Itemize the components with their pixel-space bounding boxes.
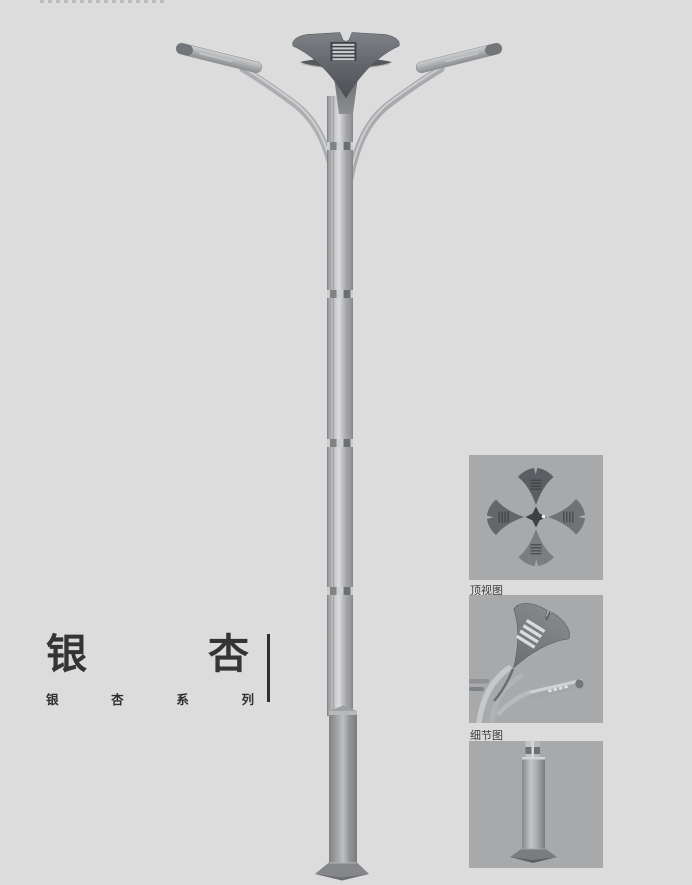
base-column [329, 706, 357, 867]
joint-band [327, 439, 353, 447]
series-char: 列 [241, 689, 254, 708]
title-char: 杏 [208, 633, 249, 676]
edge-blade [469, 687, 484, 691]
lamp-arm-left [243, 68, 337, 196]
ginkgo-crown [293, 33, 400, 115]
lamp-head-left [175, 42, 263, 74]
series-char: 系 [176, 689, 189, 708]
series-char: 银 [46, 689, 59, 708]
joint-band [327, 142, 353, 150]
base-plate [315, 863, 369, 881]
detail-views-panel: 顶视图 [469, 455, 603, 868]
top-view-label: 顶视图 [469, 580, 603, 595]
detail-view-label: 细节图 [469, 723, 603, 741]
pole [327, 96, 353, 716]
joint-band [327, 290, 353, 298]
top-view-highlight [542, 515, 546, 519]
base-view-column [522, 757, 545, 851]
product-series-title: 银 杏 系 列 [46, 689, 254, 708]
product-title-block: 银 杏 银 杏 系 列 [46, 633, 276, 708]
joint-band [327, 587, 353, 595]
detail-view-image [469, 595, 603, 723]
lamp-arm-right [347, 68, 441, 196]
series-char: 杏 [111, 689, 124, 708]
top-view-image [469, 455, 603, 580]
lamp-head-right [415, 42, 503, 74]
product-title: 银 杏 [46, 633, 249, 676]
base-view-image [469, 741, 603, 868]
title-char: 银 [46, 633, 87, 676]
title-divider-line [267, 634, 270, 702]
edge-blade [469, 679, 489, 684]
crown-grille [331, 42, 357, 61]
